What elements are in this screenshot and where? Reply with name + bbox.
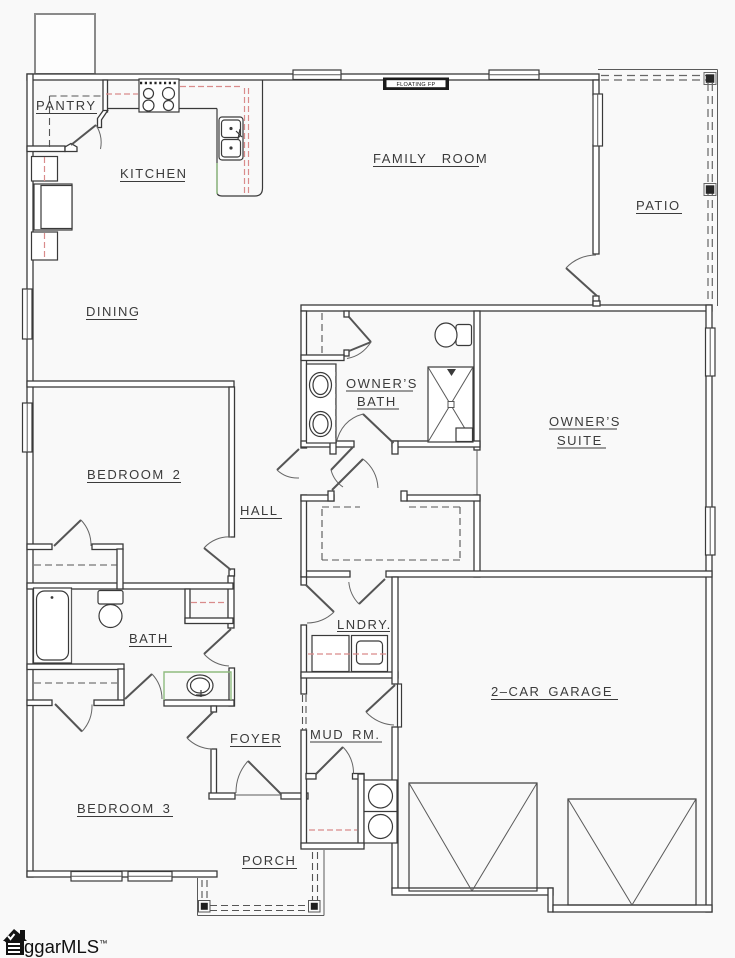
svg-text:HALL: HALL — [240, 503, 279, 518]
svg-text:ggarMLS™: ggarMLS™ — [24, 936, 108, 957]
svg-text:LNDRY.: LNDRY. — [337, 617, 392, 632]
svg-text:KITCHEN: KITCHEN — [120, 166, 188, 181]
svg-text:PANTRY: PANTRY — [36, 98, 97, 113]
svg-text:PORCH: PORCH — [242, 853, 296, 868]
svg-text:BATH: BATH — [129, 631, 169, 646]
svg-text:FOYER: FOYER — [230, 731, 282, 746]
svg-text:OWNER’S: OWNER’S — [549, 414, 621, 429]
svg-text:PATIO: PATIO — [636, 198, 681, 213]
svg-text:2–CAR GARAGE: 2–CAR GARAGE — [491, 684, 613, 699]
svg-text:BATH: BATH — [357, 394, 397, 409]
svg-text:MUD RM.: MUD RM. — [310, 727, 380, 742]
svg-text:DINING: DINING — [86, 304, 141, 319]
svg-text:FAMILY ROOM: FAMILY ROOM — [373, 151, 488, 166]
svg-text:BEDROOM 3: BEDROOM 3 — [77, 801, 171, 816]
svg-text:FLOATING FP: FLOATING FP — [397, 82, 436, 88]
svg-text:SUITE: SUITE — [557, 433, 603, 448]
svg-text:BEDROOM 2: BEDROOM 2 — [87, 467, 181, 482]
svg-text:OWNER’S: OWNER’S — [346, 376, 418, 391]
